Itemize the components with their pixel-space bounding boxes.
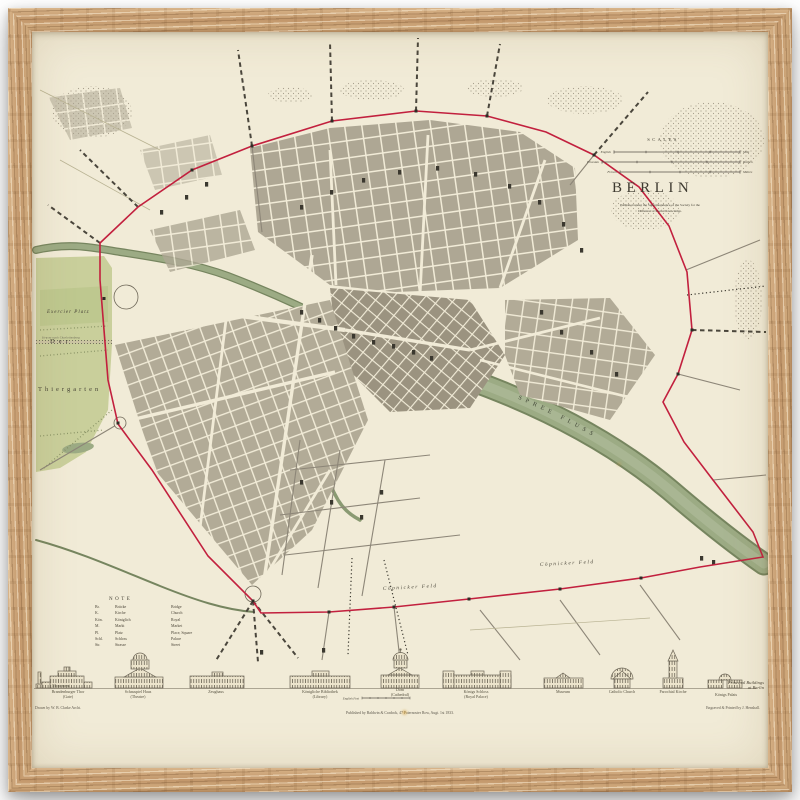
label-exercier-platz: Exercier Platz xyxy=(46,310,90,315)
scale-prussian-unit: Ruthen xyxy=(742,160,753,164)
note-legend: NOTE Br. K. Kön. M. Pl. Schl. Str. Brück… xyxy=(95,597,225,649)
elevation-theatre xyxy=(115,653,163,688)
elevation-catholic-church xyxy=(611,668,633,688)
note-english-column: Bridge Church Royal Market Place, Square… xyxy=(171,604,223,649)
note-heading: NOTE xyxy=(109,597,225,602)
map-canvas: BERLIN Published under the Superintenden… xyxy=(32,32,768,768)
map-title: BERLIN xyxy=(612,180,693,196)
credit-drawn-by: Drawn by W. B. Clarke Archt. xyxy=(35,706,81,710)
strip-right-title: Principal Buildings at Berlin xyxy=(684,680,764,690)
label-thiergarten: Thiergarten xyxy=(38,386,101,393)
credit-published: Published by Baldwin & Cradock, 47 Pater… xyxy=(250,711,550,715)
note-abbreviations-column: Br. K. Kön. M. Pl. Schl. Str. xyxy=(95,604,111,649)
caption-royal-palace: Königs Schloss (Royal Palace) xyxy=(441,690,511,700)
scale-french-label: French xyxy=(606,170,617,174)
frame-right-rail xyxy=(768,8,792,792)
caption-theatre: Schauspiel Haus (Theatre) xyxy=(103,690,173,700)
scale-french-unit: Mètres xyxy=(742,170,753,174)
elevation-royal-library xyxy=(290,671,350,688)
note-german-column: Brücke Kirche Königlich Markt Platz Schl… xyxy=(115,604,167,649)
frame-top-rail xyxy=(8,8,792,32)
elevation-parochial-church xyxy=(663,650,683,688)
caption-brandenburg-gate: Brandenburger Thor (Gate) xyxy=(33,690,103,700)
oak-picture-frame: BERLIN Published under the Superintenden… xyxy=(8,8,792,792)
scale-english-label: English xyxy=(600,150,612,154)
scale-prussian-label: Prussian xyxy=(586,160,599,164)
caption-koenigs-palais: Königs Palais xyxy=(691,693,761,698)
elevation-zeughaus xyxy=(190,672,244,688)
caption-royal-library: Königliche Bibliothek (Library) xyxy=(285,690,355,700)
label-coepnicker-feld-west: Cöpnicker Feld xyxy=(383,583,438,592)
scale-english-unit: Mile xyxy=(742,150,750,154)
label-coepnicker-feld-east: Cöpnicker Feld xyxy=(540,559,595,568)
caption-cathedral: Dom (Cathedral) xyxy=(365,688,435,698)
map-sheet: BERLIN Published under the Superintenden… xyxy=(32,32,768,768)
elevation-museum xyxy=(544,673,583,688)
map-subtitle-1: Published under the Superintendence of t… xyxy=(620,203,700,207)
credit-engraved: Engraved & Printed by J. Henshall. xyxy=(560,706,760,710)
framed-map-scene: BERLIN Published under the Superintenden… xyxy=(0,0,800,800)
scales-heading: SCALES xyxy=(647,137,679,142)
elevation-royal-palace xyxy=(443,671,511,688)
label-charlottenburg-road: Strasse nach Charlottenburg xyxy=(42,337,80,340)
frame-bottom-rail xyxy=(8,768,792,792)
city-districts xyxy=(48,88,655,585)
caption-zeughaus: Zeughaus xyxy=(181,690,251,695)
frame-left-rail xyxy=(8,8,32,792)
map-subtitle-2: Diffusion of Useful Knowledge. xyxy=(638,209,682,213)
elevation-cathedral xyxy=(381,649,419,688)
